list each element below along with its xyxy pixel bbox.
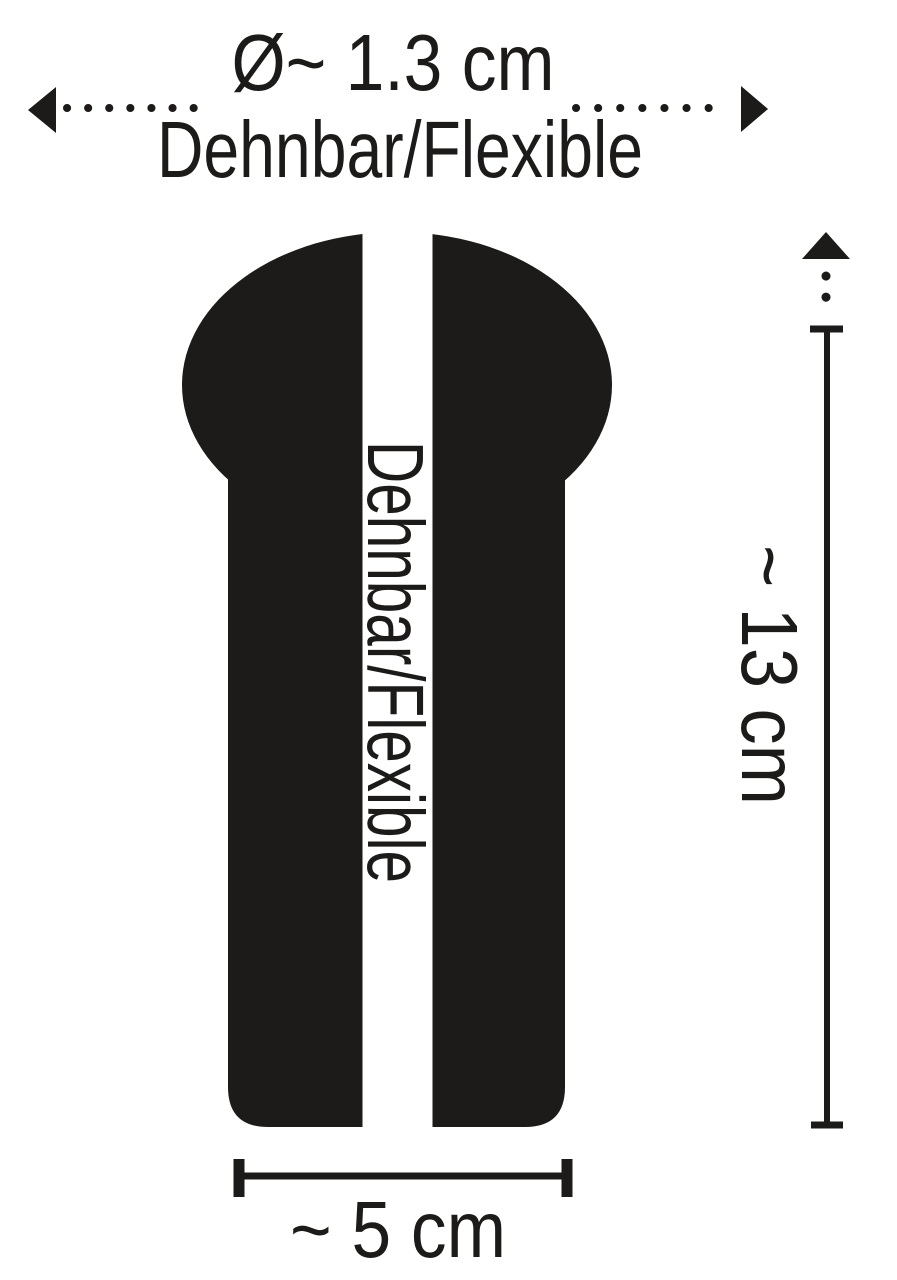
diameter-label: Ø~ 1.3 cm xyxy=(232,18,555,107)
stripe-label: Dehnbar/Flexible xyxy=(351,441,440,883)
width-dimension: ~ 5 cm xyxy=(234,1159,572,1274)
arrow-left-icon xyxy=(28,87,56,133)
arrow-right-icon xyxy=(741,86,768,132)
product-silhouette: Dehnbar/Flexible xyxy=(182,225,612,1135)
width-label: ~ 5 cm xyxy=(290,1185,506,1274)
diagram-canvas: Ø~ 1.3 cm Dehnbar/Flexible Dehnbar/Flexi… xyxy=(0,0,897,1280)
dimension-diagram: Ø~ 1.3 cm Dehnbar/Flexible Dehnbar/Flexi… xyxy=(0,0,897,1280)
flexible-label-top: Dehnbar/Flexible xyxy=(157,105,643,194)
length-label: ~ 13 cm xyxy=(725,545,814,805)
top-diameter-dimension: Ø~ 1.3 cm Dehnbar/Flexible xyxy=(28,18,768,194)
arrow-up-icon xyxy=(802,232,850,259)
length-dimension: ~ 13 cm xyxy=(725,232,850,1125)
